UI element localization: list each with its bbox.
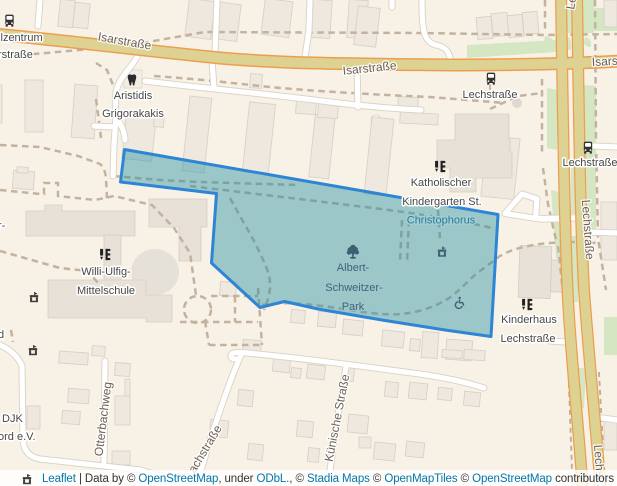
svg-text:Grigorakakis: Grigorakakis — [102, 108, 164, 120]
svg-text:Willi-Ulfig-: Willi-Ulfig- — [81, 266, 131, 278]
svg-text:Mittelschule: Mittelschule — [77, 285, 135, 297]
svg-text:Katholischer: Katholischer — [411, 177, 472, 189]
svg-text:Albert-: Albert- — [337, 262, 370, 274]
svg-text:Kinderhaus: Kinderhaus — [501, 314, 557, 326]
svg-text:d: d — [0, 329, 4, 341]
svg-text:lzentrum: lzentrum — [1, 32, 43, 44]
svg-text:Kindergarten St.: Kindergarten St. — [402, 196, 482, 208]
svg-text:Lechstraße: Lechstraße — [562, 157, 617, 169]
svg-text:Schweitzer-: Schweitzer- — [325, 282, 383, 294]
svg-text:rstraße: rstraße — [0, 49, 33, 61]
svg-text:DJK: DJK — [2, 413, 23, 425]
svg-text:Park: Park — [342, 301, 365, 313]
svg-text:Lechstraße: Lechstraße — [462, 89, 517, 101]
svg-text:ord e.V.: ord e.V. — [0, 431, 36, 443]
svg-text:Aristidis: Aristidis — [114, 90, 153, 102]
svg-text:Isarstraße: Isarstraße — [591, 52, 617, 69]
svg-text:Leaflet | Data by © OpenStreet: Leaflet | Data by © OpenStreetMap, under… — [42, 473, 614, 485]
svg-text:Lechstraße: Lechstraße — [500, 333, 555, 345]
svg-text:r-: r- — [0, 220, 6, 232]
